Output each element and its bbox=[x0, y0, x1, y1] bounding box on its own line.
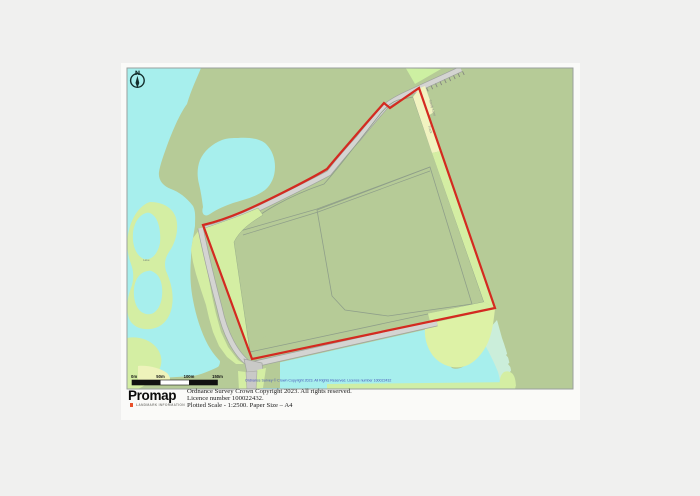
svg-text:Lake: Lake bbox=[143, 258, 150, 262]
svg-text:Ordnance Survey © Crown Copyri: Ordnance Survey © Crown Copyright 2023. … bbox=[245, 379, 391, 383]
svg-text:150m: 150m bbox=[212, 374, 223, 379]
svg-text:100m: 100m bbox=[184, 374, 195, 379]
svg-text:0m: 0m bbox=[131, 374, 137, 379]
svg-text:50m: 50m bbox=[156, 374, 165, 379]
